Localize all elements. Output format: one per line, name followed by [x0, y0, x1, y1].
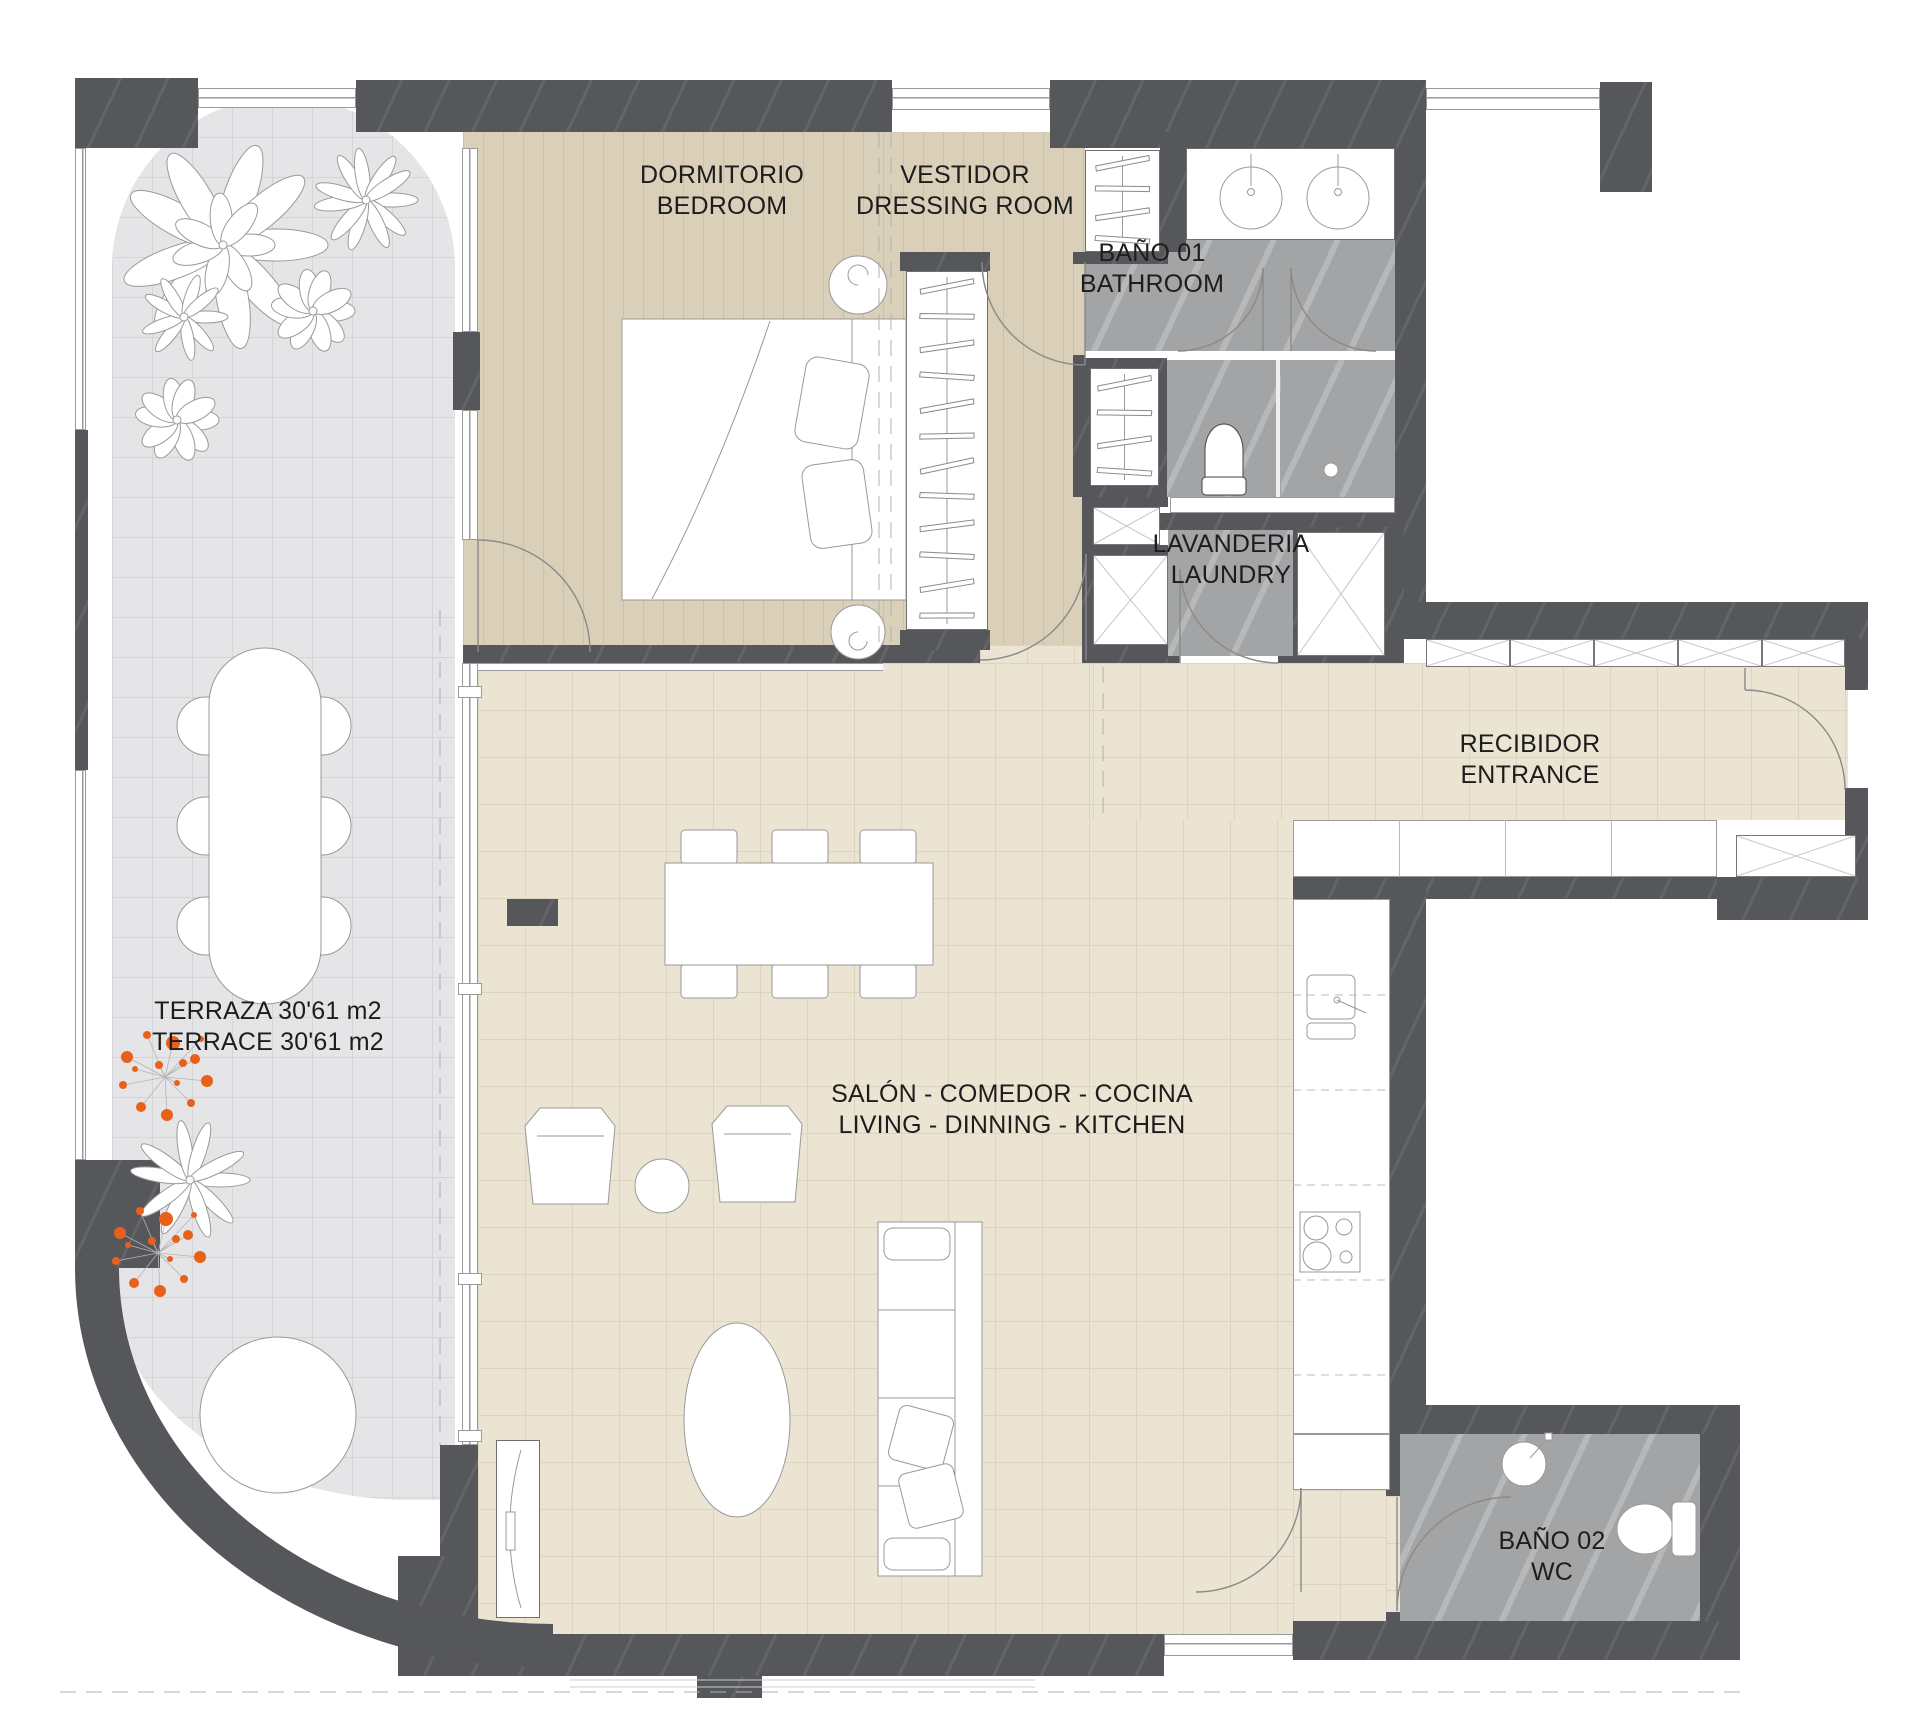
room-label-entrance: RECIBIDORENTRANCE [1460, 729, 1601, 791]
wall-terrace-top-left-corner [75, 78, 198, 148]
kitchen-counter [1293, 899, 1390, 1434]
kitchen-counter-end [1293, 1434, 1390, 1490]
wall-terrace-left-low [75, 1160, 160, 1268]
wall-right-above-entry-door [1845, 639, 1868, 690]
wall-terrace-left-mid [75, 430, 88, 770]
wall-entrance-bottom-right-block [1717, 877, 1868, 920]
wall-closet-left-sliver [1082, 507, 1093, 663]
window-mullion [458, 1273, 482, 1285]
wall-entrance-top [1404, 602, 1868, 639]
closet-entrance-row-cell [1762, 639, 1845, 667]
wall-living-left-low [440, 1445, 478, 1556]
wall-wardrobe-cap-top [900, 252, 990, 271]
room-label-laundry: LAVANDERIALAUNDRY [1153, 529, 1310, 591]
window-mullion [458, 983, 482, 995]
wall-wardrobe-cap-bottom [900, 630, 990, 650]
window-dressing-top [892, 88, 1050, 110]
floor-terrace [112, 97, 455, 1500]
room-label-living: SALÓN - COMEDOR - COCINALIVING - DINNING… [831, 1079, 1193, 1141]
room-label-terrace: TERRAZA 30'61 m2TERRACE 30'61 m2 [152, 996, 384, 1058]
closet-entrance-row-cell [1678, 639, 1762, 667]
wardrobe-bath-upper [1085, 150, 1160, 252]
window-bedroom-terrace-lower [462, 410, 478, 540]
column-living [507, 899, 558, 926]
wall-top-bedroom [356, 80, 892, 132]
vanity-bathroom1 [1186, 148, 1395, 240]
wall-closet-cap-top [1082, 497, 1168, 507]
closet-laundry-right [1297, 532, 1385, 656]
window-living-bottom [1164, 1634, 1293, 1656]
closet-entrance-bottom-right [1736, 835, 1856, 877]
entrance-sideboard-divider [1505, 820, 1506, 877]
window-mullion [458, 1430, 482, 1442]
room-label-bedroom: DORMITORIOBEDROOM [640, 160, 804, 222]
wall-top-bathroom1 [1050, 80, 1426, 148]
counter-bathroom1-bottom [1170, 497, 1395, 513]
wardrobe-dressing-long [906, 271, 988, 630]
room-label-dressing-room: VESTIDORDRESSING ROOM [856, 160, 1074, 222]
closet-laundry-left-small [1093, 507, 1160, 545]
closet-entrance-row-cell [1510, 639, 1594, 667]
window-living-terrace [462, 663, 478, 1445]
wardrobe-bath-lower [1090, 368, 1159, 486]
window-terrace-left-lower [75, 770, 86, 1160]
window-under-bedroom-wall [478, 663, 883, 671]
wall-laundry-bottom-right [1278, 656, 1293, 663]
window-terrace-top [198, 88, 356, 108]
tv-unit [496, 1440, 540, 1618]
wall-closet-cap-bottom [1082, 645, 1168, 663]
wall-laundry-bottom-left [1168, 656, 1180, 663]
wall-living-bottom-notch [697, 1676, 762, 1698]
floor-wc-door-gap [1386, 1496, 1400, 1612]
wall-wc-bottom [1293, 1621, 1740, 1660]
closet-entrance-row-cell [1594, 639, 1678, 667]
wall-bedroom-left-chunk [453, 332, 480, 410]
floor-wc-corridor [1293, 1490, 1390, 1621]
floor-plan: DORMITORIOBEDROOM VESTIDORDRESSING ROOM … [0, 0, 1920, 1733]
closet-entrance-row-cell [1426, 639, 1510, 667]
window-top-right [1426, 88, 1600, 110]
wall-wc-left-lower [1386, 1612, 1400, 1621]
wall-living-bottom [398, 1634, 1164, 1676]
entrance-sideboard-divider [1399, 820, 1400, 877]
wall-living-bottom-left-block [398, 1556, 478, 1634]
window-sill-lines [570, 1680, 1035, 1687]
wall-top-right-pillar [1600, 82, 1652, 192]
window-bedroom-terrace-upper [462, 148, 478, 332]
window-mullion [458, 686, 482, 698]
entrance-sideboard-divider [1611, 820, 1612, 877]
wall-wc-right [1700, 1434, 1740, 1621]
wall-kitchen-east [1390, 877, 1426, 1405]
floor-bathroom1-toilet [1167, 360, 1281, 497]
room-label-wc: BAÑO 02WC [1498, 1526, 1605, 1588]
wall-wc-top [1386, 1405, 1740, 1434]
floor-bathroom1-shower [1281, 360, 1395, 497]
window-terrace-left-upper [75, 148, 86, 430]
room-label-bathroom1: BAÑO 01BATHROOM [1080, 238, 1224, 300]
wall-divider-wardrobe-vanity [1160, 132, 1186, 252]
floor-bedroom-door-gap [980, 645, 1086, 663]
